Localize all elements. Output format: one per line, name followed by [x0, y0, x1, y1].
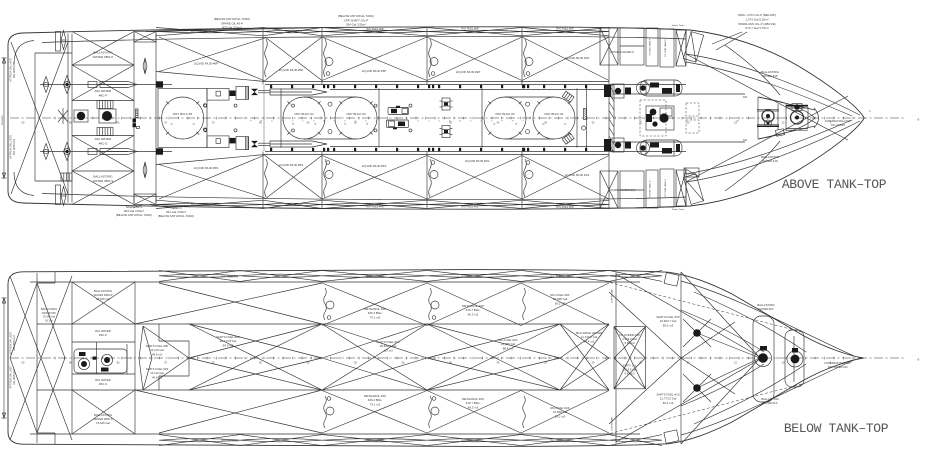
svg-text:(BELOW ANTI-ROLL TANK): (BELOW ANTI-ROLL TANK) [158, 214, 194, 218]
svg-text:WATER #8W-S: WATER #8W-S [93, 179, 113, 183]
svg-text:RIG WATER: RIG WATER [95, 89, 112, 93]
svg-text:BALLAST/RIG: BALLAST/RIG [93, 175, 113, 179]
svg-text:WATER #5C: WATER #5C [42, 312, 56, 315]
svg-text:#8C-P: #8C-P [99, 93, 108, 97]
svg-text:RIG FUEL #3S: RIG FUEL #3S [461, 439, 478, 443]
svg-text:903 Gal 3.50m³: 903 Gal 3.50m³ [222, 26, 242, 30]
svg-text:RIG FUEL #5S: RIG FUEL #5S [221, 439, 238, 443]
svg-text:45.8 m3: 45.8 m3 [152, 352, 163, 356]
svg-text:RIG FUEL #3P: RIG FUEL #3P [461, 275, 478, 279]
svg-text:15,646 Gal: 15,646 Gal [43, 316, 56, 319]
svg-text:400: 400 [743, 96, 748, 99]
svg-text:85.6 m3: 85.6 m3 [663, 323, 674, 327]
svg-text:RIG WATER: RIG WATER [95, 137, 112, 141]
svg-text:RIG FUEL #4S: RIG FUEL #4S [366, 204, 383, 208]
svg-text:RIG WATER-P: RIG WATER-P [13, 61, 16, 78]
svg-text:-5: -5 [917, 118, 920, 122]
svg-text:DRY BULK #1: DRY BULK #1 [544, 112, 563, 116]
svg-text:WATER #1P: WATER #1P [762, 74, 778, 78]
svg-text:88.4 m3: 88.4 m3 [503, 346, 514, 350]
svg-text:BALLAST/RIG: BALLAST/RIG [757, 303, 774, 307]
svg-text:672.7 Gal 3.76m³: 672.7 Gal 3.76m³ [745, 26, 768, 30]
svg-text:74.1 m3: 74.1 m3 [370, 315, 381, 319]
svg-text:RIG FUEL #2BP: RIG FUEL #2BP [551, 275, 570, 279]
svg-text:45.8 m3: 45.8 m3 [152, 375, 163, 379]
svg-text:RIG FUEL #3P: RIG FUEL #3P [461, 27, 478, 31]
svg-text:LIQUID MUD #3S: LIQUID MUD #3S [362, 164, 387, 168]
svg-text:BALLAST/RIG: BALLAST/RIG [761, 397, 778, 401]
svg-text:66.3 m3: 66.3 m3 [468, 405, 479, 409]
svg-text:59.2 m3: 59.2 m3 [555, 414, 566, 418]
svg-text:#6C-S: #6C-S [99, 382, 107, 386]
svg-text:15,646 Gal: 15,646 Gal [96, 421, 110, 425]
svg-text:RIG FUEL #4P: RIG FUEL #4P [366, 275, 383, 279]
svg-text:-5: -5 [917, 358, 920, 362]
svg-text:RIG FUEL #5P: RIG FUEL #5P [221, 275, 238, 279]
svg-text:DRY BULK #3: DRY BULK #3 [346, 112, 365, 116]
svg-text:BALLAST/RIG: BALLAST/RIG [93, 51, 113, 55]
svg-text:SEWAGE: SEWAGE [687, 173, 696, 176]
svg-text:59.2 m3: 59.2 m3 [555, 301, 566, 305]
svg-text:1,373 Gal 5.20m³: 1,373 Gal 5.20m³ [745, 17, 768, 21]
svg-text:RIG FUEL #5P: RIG FUEL #5P [285, 29, 302, 33]
svg-text:RIG FUEL #5S: RIG FUEL #5S [285, 203, 302, 207]
svg-text:BALLAST/RIG: BALLAST/RIG [41, 308, 57, 311]
svg-text:LIQUID MUD #6S: LIQUID MUD #6S [194, 166, 219, 170]
svg-text:DRY BULK #5: DRY BULK #5 [173, 112, 192, 116]
svg-text:9.53 m3: 9.53 m3 [624, 372, 635, 376]
svg-text:RIG FUEL #2BS: RIG FUEL #2BS [551, 439, 570, 443]
svg-text:113 m3: 113 m3 [383, 348, 393, 352]
svg-text:LIQUID MUD #2P: LIQUID MUD #2P [456, 70, 481, 74]
svg-text:POTABLE WATER-S(T): POTABLE WATER-S(T) [609, 188, 636, 192]
svg-text:#6C-P: #6C-P [99, 333, 107, 337]
svg-text:FO TRIM TANK-P: FO TRIM TANK-P [664, 39, 667, 57]
svg-text:LIQUID MUD #1P: LIQUID MUD #1P [565, 56, 590, 60]
svg-text:RIG FUEL #2S: RIG FUEL #2S [556, 205, 573, 209]
svg-text:LIQUID MUD #1S: LIQUID MUD #1S [565, 173, 590, 177]
svg-text:63.2m³: 63.2m³ [45, 319, 53, 322]
svg-text:LIQUID MUD #5P: LIQUID MUD #5P [279, 68, 304, 72]
svg-text:#8C-S: #8C-S [99, 141, 108, 145]
svg-text:RIG WATER-P: RIG WATER-P [13, 335, 16, 351]
svg-text:FO DAY TANK-P: FO DAY TANK-P [649, 38, 652, 55]
svg-text:RIG WATER-S: RIG WATER-S [13, 138, 16, 155]
svg-text:WATER #1S: WATER #1S [763, 401, 778, 405]
svg-text:66.3 m3: 66.3 m3 [468, 312, 479, 316]
svg-text:RIG FUEL #6WS: RIG FUEL #6WS [191, 203, 211, 207]
svg-text:ABOVE TANK–TOP: ABOVE TANK–TOP [782, 177, 887, 192]
svg-text:82.4 m3: 82.4 m3 [663, 401, 674, 405]
svg-text:RIG FUEL #4P: RIG FUEL #4P [366, 27, 383, 31]
svg-text:74.1 m3: 74.1 m3 [370, 402, 381, 406]
svg-text:FO TRIM TANK-S: FO TRIM TANK-S [664, 179, 667, 197]
svg-text:LIQUID MUD #5S: LIQUID MUD #5S [279, 163, 304, 167]
svg-text:LIQUID MUD #6P: LIQUID MUD #6P [194, 62, 219, 66]
svg-text:(BELOW ANTI-ROLL TANK): (BELOW ANTI-ROLL TANK) [116, 213, 152, 217]
svg-text:MOLDED: MOLDED [2, 115, 4, 125]
svg-text:400: 400 [743, 139, 748, 142]
svg-text:BELOW TANK–TOP: BELOW TANK–TOP [784, 421, 889, 436]
svg-text:RIG WATER: RIG WATER [831, 124, 845, 127]
svg-text:WATER #8W-P: WATER #8W-P [93, 55, 113, 59]
svg-text:FO DAY TANK-S: FO DAY TANK-S [649, 180, 652, 197]
svg-text:83.9 m3: 83.9 m3 [223, 343, 234, 347]
svg-text:15,646 Gal: 15,646 Gal [96, 297, 110, 301]
svg-text:WATER #1S: WATER #1S [762, 159, 778, 163]
svg-text:PHOTOCOABOCOPHOTOCOABOCOPHOT: PHOTOCOABOCOPHOTOCOABOCOPHOT [250, 120, 543, 123]
svg-text:Tanker Tanks: Tanker Tanks [672, 208, 686, 211]
svg-text:9.53 m3: 9.53 m3 [624, 341, 635, 345]
svg-text:44.4 m3: 44.4 m3 [584, 339, 595, 343]
svg-text:POTABLE WATER-P: POTABLE WATER-P [610, 50, 634, 54]
svg-text:Tanker Tanks: Tanker Tanks [672, 24, 686, 27]
svg-text:LIQUID MUD #3P: LIQUID MUD #3P [362, 69, 387, 73]
svg-text:COFFERDAM: COFFERDAM [611, 417, 614, 431]
svg-text:WINDLASS OIL-P (ABOVE): WINDLASS OIL-P (ABOVE) [738, 22, 775, 26]
svg-text:MISC. HYD OIL-P (BELOW): MISC. HYD OIL-P (BELOW) [738, 13, 776, 17]
svg-text:RIG WATER #1C: RIG WATER #1C [828, 365, 848, 369]
svg-text:924 Gal 3.50m³: 924 Gal 3.50m³ [346, 23, 366, 27]
svg-text:WATER #1P: WATER #1P [759, 307, 774, 311]
svg-text:RIG FUEL #3S: RIG FUEL #3S [461, 205, 478, 209]
svg-text:LIQUID MUD #2S: LIQUID MUD #2S [465, 159, 490, 163]
svg-text:RIG FUEL #4S: RIG FUEL #4S [366, 439, 383, 443]
svg-text:DRY BULK #2: DRY BULK #2 [495, 112, 514, 116]
svg-text:COFFERDAM: COFFERDAM [611, 289, 614, 303]
svg-text:RIG WATER-S: RIG WATER-S [13, 369, 16, 385]
svg-text:DRY BULK #4: DRY BULK #4 [294, 112, 313, 116]
svg-text:RIG FUEL #2P: RIG FUEL #2P [556, 26, 573, 30]
svg-text:RIG FUEL #6WP: RIG FUEL #6WP [191, 30, 211, 34]
svg-text:FOREPEAK BALLAST/: FOREPEAK BALLAST/ [825, 361, 852, 365]
